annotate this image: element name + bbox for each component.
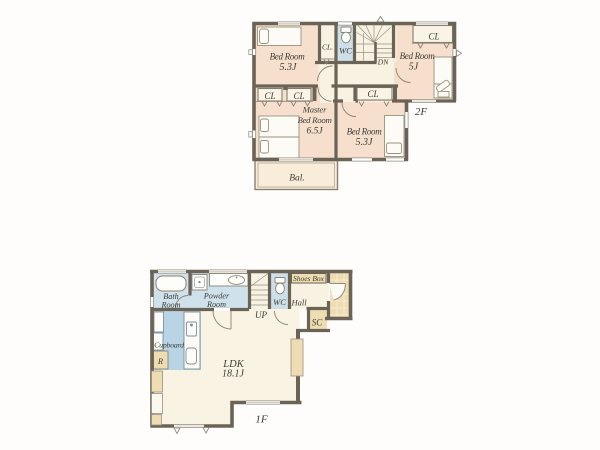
- svg-text:1F: 1F: [255, 414, 268, 426]
- svg-text:CL: CL: [367, 89, 378, 99]
- svg-text:CL: CL: [264, 91, 275, 101]
- svg-text:Bed Room: Bed Room: [400, 51, 436, 61]
- svg-text:DN: DN: [377, 58, 390, 67]
- svg-text:WC: WC: [339, 46, 352, 56]
- svg-text:Room: Room: [160, 301, 180, 310]
- svg-text:Cupboard: Cupboard: [154, 341, 184, 350]
- svg-text:SC: SC: [312, 318, 324, 328]
- svg-text:CL: CL: [428, 32, 439, 42]
- svg-text:Bal.: Bal.: [289, 174, 305, 184]
- svg-text:R: R: [157, 356, 164, 366]
- svg-text:2F: 2F: [415, 106, 428, 118]
- svg-text:18.1J: 18.1J: [222, 369, 245, 380]
- svg-text:Room: Room: [206, 300, 226, 309]
- svg-text:UP: UP: [255, 310, 267, 320]
- svg-text:Shoes Box: Shoes Box: [293, 274, 325, 283]
- svg-text:6.5J: 6.5J: [306, 127, 323, 137]
- svg-text:5.3J: 5.3J: [280, 62, 298, 73]
- svg-text:5J: 5J: [409, 62, 419, 73]
- svg-text:Master: Master: [302, 105, 327, 115]
- svg-text:CL.: CL.: [322, 43, 333, 52]
- svg-text:CL: CL: [293, 91, 304, 101]
- svg-text:Bed Room: Bed Room: [347, 127, 383, 137]
- svg-text:Bed Room: Bed Room: [298, 115, 332, 125]
- svg-text:Bed Room: Bed Room: [270, 52, 306, 62]
- svg-text:5.3J: 5.3J: [356, 137, 374, 148]
- svg-text:Hall: Hall: [290, 298, 307, 308]
- svg-text:WC: WC: [273, 297, 286, 307]
